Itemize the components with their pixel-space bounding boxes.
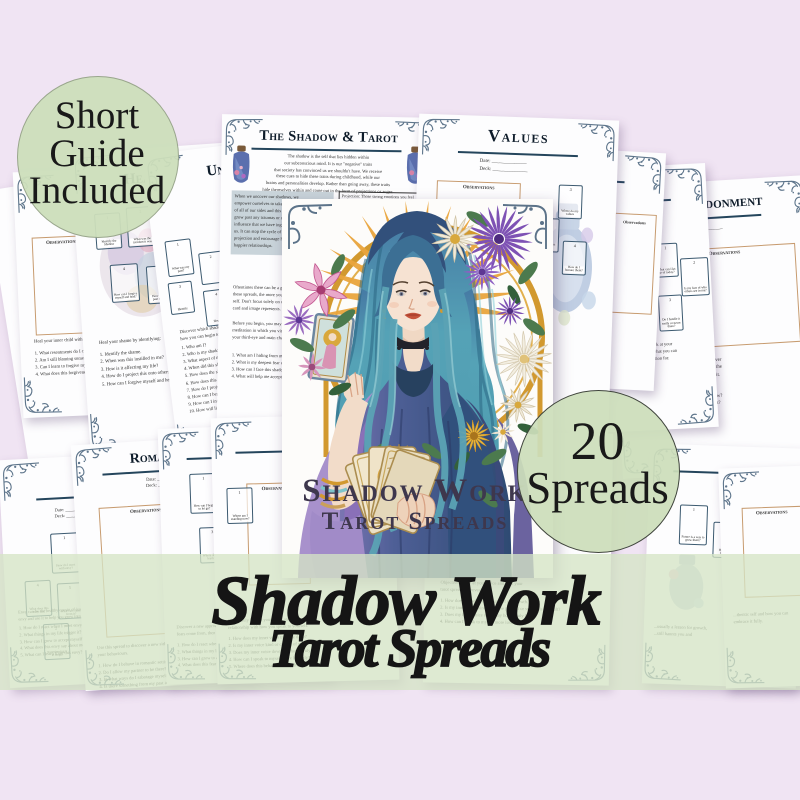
svg-text:Tarot Spreads: Tarot Spreads: [322, 508, 509, 535]
svg-text:Shadow Work: Shadow Work: [302, 473, 527, 509]
